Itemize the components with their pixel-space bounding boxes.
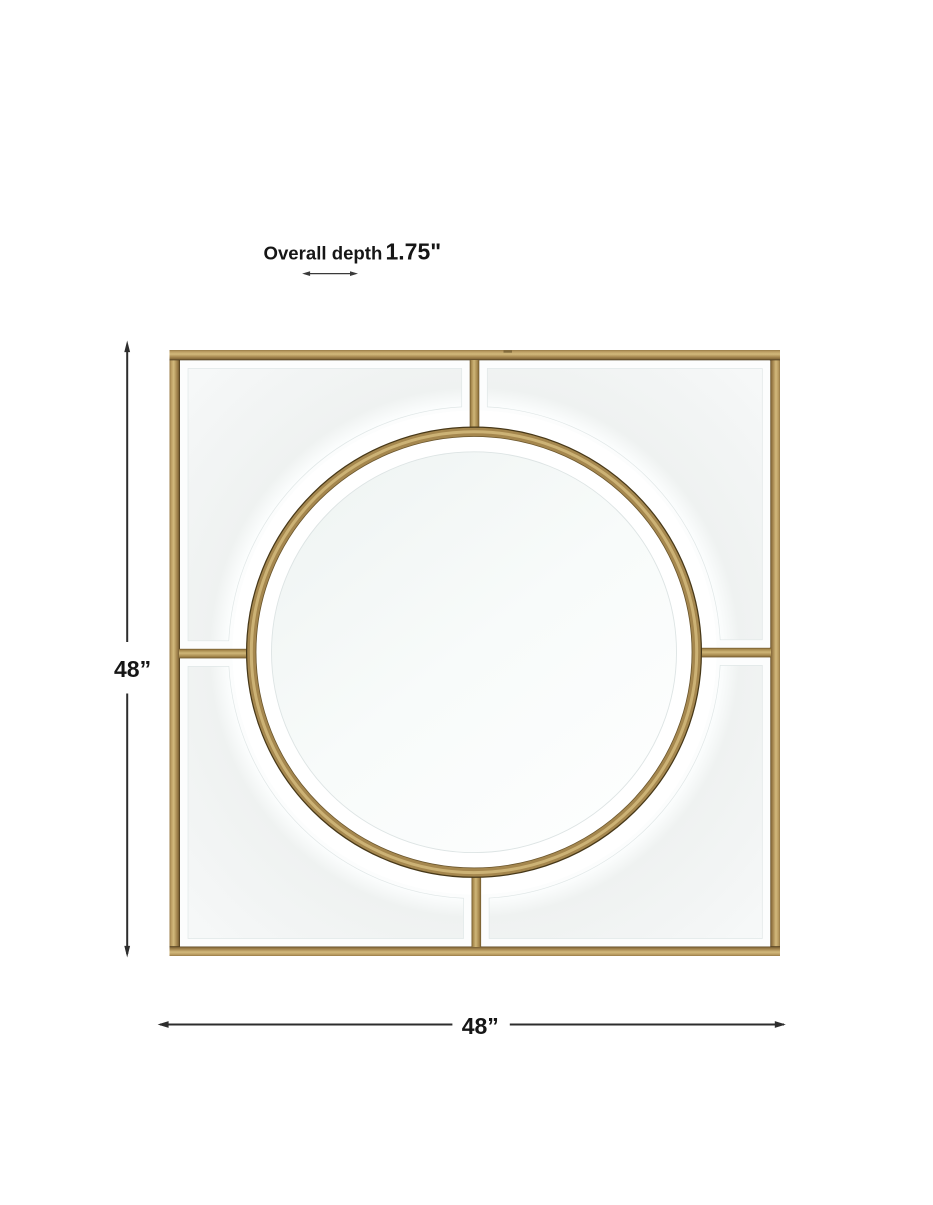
- svg-text:1.75": 1.75": [386, 239, 442, 265]
- svg-text:48”: 48”: [462, 1013, 499, 1039]
- svg-text:Overall depth: Overall depth: [264, 243, 383, 264]
- svg-text:48”: 48”: [114, 656, 151, 682]
